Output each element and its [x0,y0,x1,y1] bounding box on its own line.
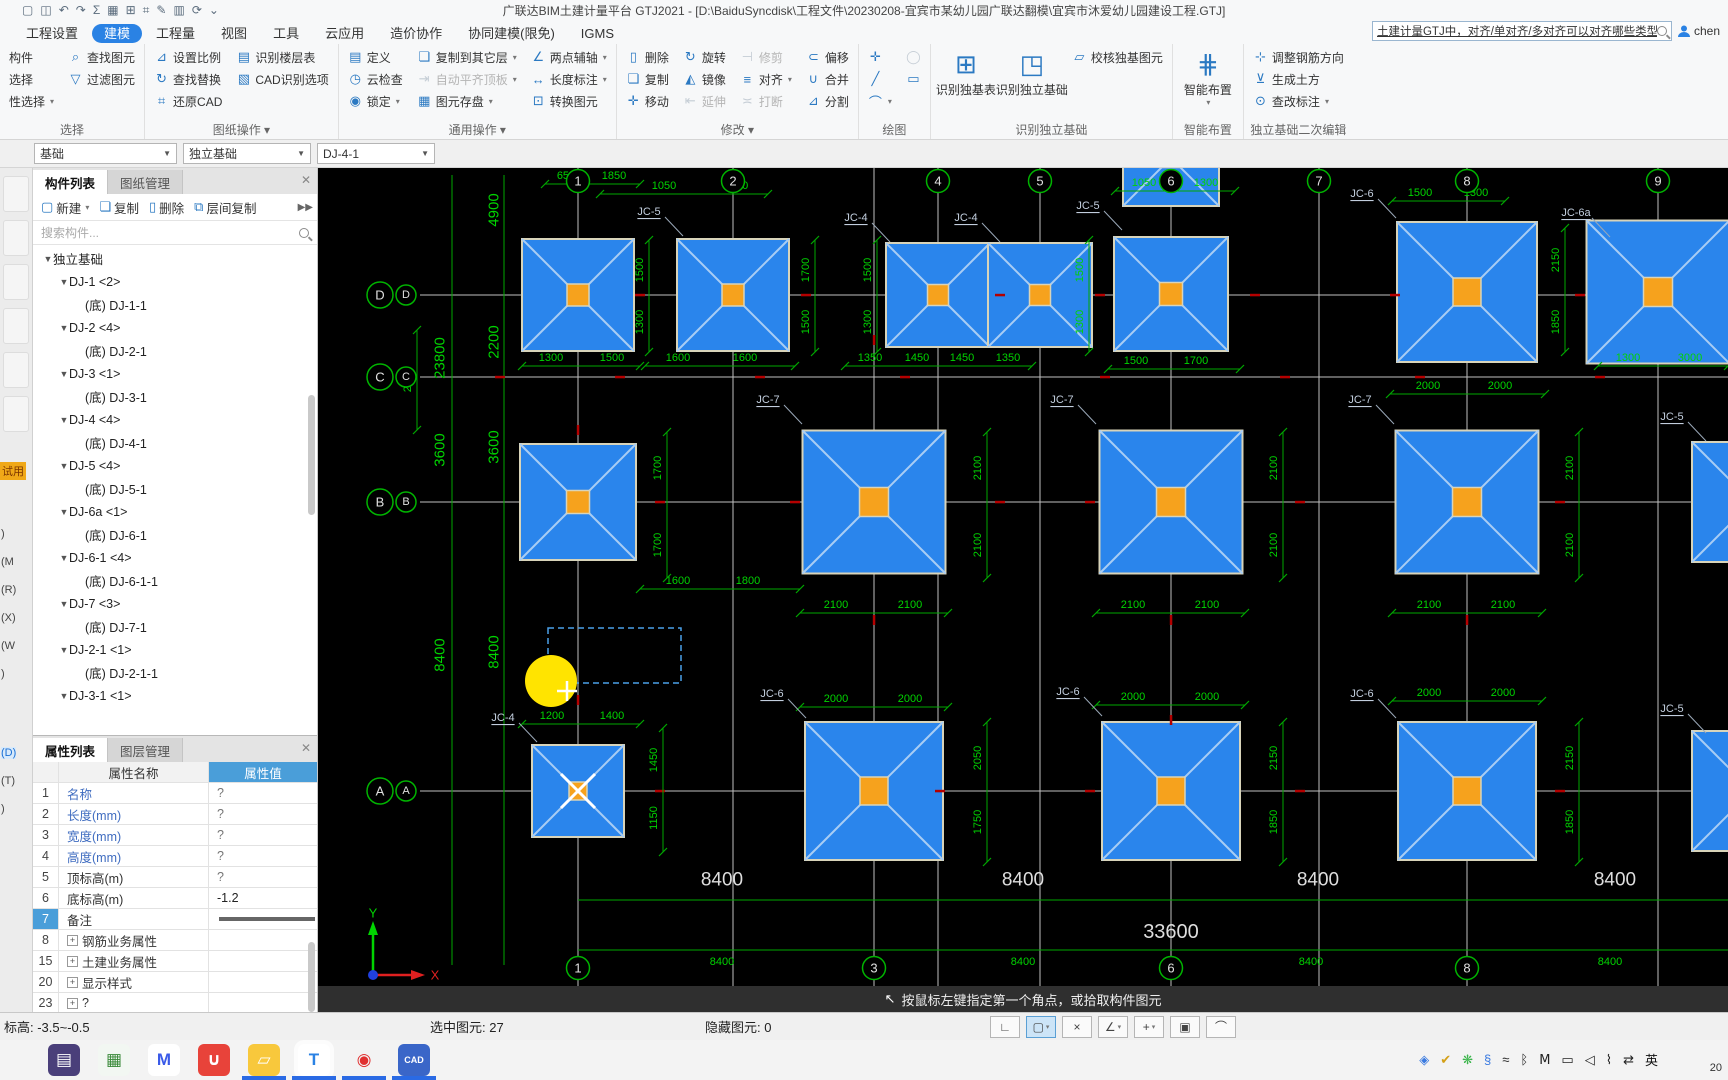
tree-item-DJ-7 <3>[interactable]: ▼DJ-7 <3> [33,592,317,615]
ribbon-button-识别独立基础[interactable]: ◳识别独立基础 [1001,46,1063,121]
cross-select-button[interactable]: × [1062,1016,1092,1038]
dim-text: 8400 [710,956,734,968]
mic-icon[interactable]: ⌇ [1606,1052,1612,1068]
tree-item-(底) DJ-7-1[interactable]: (底) DJ-7-1 [33,615,317,638]
property-row-顶标高(m)[interactable]: 5顶标高(m)? [33,867,317,888]
column-center[interactable] [1453,278,1481,306]
ribbon-button-识别独基表[interactable]: ⊞识别独基表 [935,46,997,121]
ribbon-item-移动[interactable]: ✛移动 [621,90,674,112]
axis-bubble-label: 9 [1654,174,1661,189]
menu-tab-视图[interactable]: 视图 [209,24,259,43]
dim-text: 2100 [972,533,984,557]
tree-item-DJ-3 <1>[interactable]: ▼DJ-3 <1> [33,362,317,385]
ribbon-item-定义[interactable]: ▤定义 [343,46,408,68]
dictionary-app-icon[interactable]: ▤ [48,1044,80,1076]
search-query-text: 土建计量GTJ中，对齐/单对齐/多对齐可以对齐哪些类型 [1377,23,1657,39]
ribbon-item-删除[interactable]: ▯删除 [621,46,674,68]
dim-text: 2100 [1195,599,1219,611]
props-scrollbar[interactable] [308,942,315,1012]
ribbon-item-识别楼层表[interactable]: ▤识别楼层表 [231,46,333,68]
icon-打断: ≍ [740,93,755,109]
ribbon-item-过滤图元[interactable]: ▽过滤图元 [63,68,140,90]
cursor-highlight[interactable] [525,655,577,707]
nav-item-fragment[interactable]: (D) [1,747,16,759]
ribbon-item-对齐[interactable]: ≡对齐▾ [735,68,797,90]
expand-plus-icon[interactable]: + [67,977,78,988]
ribbon-item-label: 两点辅轴 [550,49,598,66]
expand-arrow-icon: ▼ [59,507,69,517]
dim-text: 2150 [1550,248,1562,272]
collapsed-panel-stub[interactable] [3,352,29,388]
ribbon-item-延伸: ⇤延伸 [678,90,731,112]
undo-icon[interactable]: ↶ [59,1,69,19]
ribbon-item-构件[interactable]: 构件 [4,46,59,68]
collapsed-panel-stub[interactable] [3,396,29,432]
tree-scrollbar[interactable] [308,395,315,515]
column-center[interactable] [1453,488,1482,517]
tree-item-label: 独立基础 [53,249,103,268]
red-axis-tick [995,501,1005,504]
column-center[interactable] [1030,285,1051,306]
ribbon-item-point-tool-icon[interactable]: ✛ [863,46,897,68]
ribbon-item-旋转[interactable]: ↻旋转 [678,46,731,68]
tree-item-DJ-6a <1>[interactable]: ▼DJ-6a <1> [33,500,317,523]
ribbon-group-通用操作: ▤定义◷云检查◉锁定▾❏复制到其它层▾⇥自动平齐顶板▾▦图元存盘▾∠两点辅轴▾↔… [338,44,616,139]
property-row-长度(mm)[interactable]: 2长度(mm)? [33,804,317,825]
draw-icon[interactable]: ✎ [156,1,166,19]
collapsed-nav-strip[interactable]: 试用)(M(R)(X)(W)(D)(T)) [0,168,33,1012]
ribbon-item-生成土方[interactable]: ⊻生成土方 [1248,68,1349,90]
expand-arrow-icon: ▼ [59,277,69,287]
column-center[interactable] [567,284,589,306]
browser-icon[interactable]: § [1484,1052,1491,1067]
toolbar-button-层间复制[interactable]: ⧉层间复制 [190,196,260,219]
settings-toggles-icon[interactable]: ⇄ [1623,1052,1634,1068]
ribbon-item-选择[interactable]: 选择 [4,68,59,90]
tree-item-(底) DJ-2-1-1[interactable]: (底) DJ-2-1-1 [33,661,317,684]
save-icon[interactable]: ◫ [40,1,51,19]
dim-text: 2100 [1268,456,1280,480]
ribbon-item-查找图元[interactable]: ⌕查找图元 [63,46,140,68]
table-icon[interactable]: ⊞ [126,1,136,19]
angle-button[interactable]: ∠▾ [1098,1016,1128,1038]
property-name-label: ? [82,996,89,1010]
dim-text: 1700 [652,533,664,557]
dim-text: 1500 [1408,187,1432,199]
tree-item-(底) DJ-5-1[interactable]: (底) DJ-5-1 [33,477,317,500]
column-icon[interactable]: ▥ [173,1,184,19]
row-number: 23 [33,993,59,1012]
icon-复制: ❏ [626,71,641,87]
dim-text: 1700 [800,258,812,282]
tree-item-(底) DJ-6-1[interactable]: (底) DJ-6-1 [33,523,317,546]
property-row-显示样式[interactable]: 20+显示样式 [33,972,317,993]
ribbon-group-label: 通用操作 ▾ [343,121,612,139]
nav-item-fragment[interactable]: ) [1,528,5,540]
icon-对齐: ≡ [740,72,755,87]
ribbon-item-镜像[interactable]: ◭镜像 [678,68,731,90]
tree-item-label: DJ-6a <1> [69,505,127,519]
ribbon-item-label: 移动 [645,93,669,110]
volume-icon[interactable]: ◁ [1585,1052,1595,1068]
tab-图层管理[interactable]: 图层管理 [108,738,183,762]
file-explorer-icon[interactable]: ▱ [248,1044,280,1076]
column-center[interactable] [1453,777,1481,805]
ribbon-item-复制到其它层[interactable]: ❏复制到其它层▾ [412,46,522,68]
property-row-名称[interactable]: 1名称? [33,783,317,804]
ribbon-item-label: 查找替换 [173,71,221,88]
menu-tab-建模[interactable]: 建模 [92,24,142,43]
ribbon-item-性选择[interactable]: 性选择▾ [4,90,59,112]
tree-item-(底) DJ-3-1[interactable]: (底) DJ-3-1 [33,385,317,408]
tree-item-(底) DJ-6-1-1[interactable]: (底) DJ-6-1-1 [33,569,317,592]
ribbon-item-复制[interactable]: ❏复制 [621,68,674,90]
icon-识别楼层表: ▤ [236,49,251,65]
tab-图纸管理[interactable]: 图纸管理 [108,170,183,194]
nav-item-fragment[interactable]: ) [1,803,5,815]
region-button[interactable]: ▣ [1170,1016,1200,1038]
tree-item-(底) DJ-1-1[interactable]: (底) DJ-1-1 [33,293,317,316]
ribbon-item-查改标注[interactable]: ⊙查改标注▾ [1248,90,1349,112]
tree-item-(底) DJ-4-1[interactable]: (底) DJ-4-1 [33,431,317,454]
nav-item-fragment[interactable]: (W [1,640,15,652]
nav-item-fragment[interactable]: ) [1,668,5,680]
property-value [209,951,317,971]
ribbon-item-CAD识别选项[interactable]: ▧CAD识别选项 [231,68,333,90]
nav-item-fragment[interactable]: (X) [1,612,16,624]
property-row-宽度(mm)[interactable]: 3宽度(mm)? [33,825,317,846]
red-axis-tick [1170,615,1173,625]
chevron-down-icon: ▼ [297,149,305,158]
column-center[interactable] [1157,777,1185,805]
component-search-input[interactable]: 搜索构件... [33,221,317,245]
grid-icon[interactable]: ⌗ [143,1,150,19]
ribbon-item-云检查[interactable]: ◷云检查 [343,68,408,90]
chevron-down-icon: ▼ [421,149,429,158]
ribbon-item-两点辅轴[interactable]: ∠两点辅轴▾ [526,46,612,68]
antivirus-icon[interactable]: ✔ [1440,1052,1451,1068]
sum-icon[interactable]: Σ [93,1,100,19]
gtj-app-icon[interactable]: T [298,1044,330,1076]
red-axis-tick [577,695,580,705]
dropdown-arrow-icon: ▾ [85,203,89,212]
ribbon-item-line-tool-icon[interactable]: ╱ [863,68,897,90]
tree-item-label: (底) DJ-6-1-1 [85,571,158,590]
ribbon-item-分割[interactable]: ⊿分割 [801,90,854,112]
toolbar-button-复制[interactable]: ❏复制 [95,196,143,219]
ribbon-item-查找替换[interactable]: ↻查找替换 [149,68,227,90]
ribbon-item-circle-tool-icon: ◯ [901,46,926,68]
property-name: 顶标高(m) [59,867,209,887]
ribbon-icon-识别独基表: ⊞ [955,49,977,81]
property-name: +? [59,993,209,1012]
jc-label-JC-6: JC-6 [1056,686,1079,698]
icon-镜像: ◭ [683,71,698,87]
clock: 20 [1710,1062,1722,1074]
nav-item-fragment[interactable]: (M [1,556,14,568]
security-shield-icon[interactable]: ◈ [1419,1052,1429,1068]
expand-plus-icon[interactable]: + [67,935,78,946]
angle-button-icon: ∠ [1105,1020,1116,1034]
axis-bubble-label: C [375,370,384,385]
column-center[interactable] [1160,283,1183,306]
refresh-icon[interactable]: ⟳ [192,1,202,19]
ribbon-item-label: 锁定 [367,93,391,110]
删除-icon: ▯ [149,199,156,215]
wifi-icon[interactable]: ≈ [1502,1052,1509,1067]
column-center[interactable] [1157,488,1186,517]
column-center[interactable] [860,488,889,517]
dim-text: 1450 [950,352,974,364]
ribbon-item-label: 复制到其它层 [436,49,508,66]
menu-tab-云应用[interactable]: 云应用 [313,24,376,43]
ribbon-item-图元存盘[interactable]: ▦图元存盘▾ [412,90,522,112]
user-account[interactable]: chen [1677,24,1720,38]
property-row-?[interactable]: 23+? [33,993,317,1012]
dim-text: 2000 [1491,687,1515,699]
jc-label-JC-6: JC-6 [1350,688,1373,700]
quick-access-toolbar: ▢◫↶↷Σ▦⊞⌗✎▥⟳⌄ [0,1,219,19]
dim-text: 3600 [432,433,449,466]
dim-text: 2150 [1564,746,1576,770]
icon-两点辅轴: ∠ [531,49,546,65]
ribbon-item-label: 识别楼层表 [255,49,315,66]
new-file-icon[interactable]: ▢ [22,1,33,19]
property-value: ? [209,867,317,887]
ribbon-group-图纸操作: ⊿设置比例↻查找替换⌗还原CAD▤识别楼层表▧CAD识别选项图纸操作 ▾ [144,44,338,139]
close-icon[interactable]: ✕ [301,173,311,187]
ribbon-item-转换图元[interactable]: ⊡转换图元 [526,90,612,112]
property-value[interactable] [209,909,317,929]
property-panel-tabs: 属性列表图层管理✕ [33,736,317,762]
collapsed-panel-stub[interactable] [3,220,29,256]
ribbon-item-合并[interactable]: ∪合并 [801,68,854,90]
ribbon-item-label: 过滤图元 [87,71,135,88]
tree-item-独立基础[interactable]: ▼独立基础 [33,247,317,270]
expand-plus-icon[interactable]: + [67,956,78,967]
dim-text: 1450 [648,748,660,772]
dropdown-value: 基础 [40,145,64,162]
redo-icon[interactable]: ↷ [76,1,86,19]
dropdown-DJ-4-1[interactable]: DJ-4-1▼ [317,143,435,164]
property-name-label: 显示样式 [82,973,132,992]
icon-还原CAD: ⌗ [154,93,169,109]
ribbon-group-智能布置: ⋕智能布置▾智能布置 [1172,44,1243,139]
dim-text: 2200 [486,325,503,358]
tab-构件列表[interactable]: 构件列表 [33,170,108,194]
property-table: 属性名称属性值1名称?2长度(mm)?3宽度(mm)?4高度(mm)?5顶标高(… [33,762,317,1012]
dropdown-arrow-icon: ▾ [489,97,493,106]
offset-input-button[interactable]: +▾ [1134,1016,1164,1038]
menu-tab-IGMS[interactable]: IGMS [569,24,626,43]
ribbon-item-设置比例[interactable]: ⊿设置比例 [149,46,227,68]
dim-text: 2150 [1268,746,1280,770]
red-axis-tick [1100,376,1110,379]
application-window: ▢◫↶↷Σ▦⊞⌗✎▥⟳⌄ 广联达BIM土建计量平台 GTJ2021 - [D:\… [0,0,1728,1080]
property-panel: 属性列表图层管理✕ 属性名称属性值1名称?2长度(mm)?3宽度(mm)?4高度… [33,735,317,1012]
column-center[interactable] [1644,278,1673,307]
arc-tool-icon: ⌒ [868,92,883,111]
column-center[interactable] [722,284,744,306]
toolbar-button-删除[interactable]: ▯删除 [145,196,188,219]
arc-mode-button[interactable]: ⌒ [1206,1016,1236,1038]
ribbon-item-rect-tool-icon[interactable]: ▭ [901,68,926,90]
tree-item-DJ-2-1 <1>[interactable]: ▼DJ-2-1 <1> [33,638,317,661]
media-icon[interactable]: Ⅿ [1539,1052,1550,1068]
windows-taskbar: ▤▦M∪▱T◉CAD◈✔❋§≈ᛒⅯ▭◁⌇⇄英20 [0,1040,1728,1080]
ribbon-item-label: 修剪 [759,49,783,66]
ribbon-item-label: 生成土方 [1272,71,1320,88]
dim-text: 2100 [1564,533,1576,557]
search-icon[interactable] [1657,26,1667,36]
dim-text: 1350 [996,352,1020,364]
close-icon[interactable]: ✕ [301,741,311,755]
collapsed-panel-stub[interactable] [3,176,29,212]
huawei-app-icon[interactable]: ∪ [198,1044,230,1076]
running-indicator [242,1076,286,1080]
icon-定义: ▤ [348,49,363,65]
dim-text: 8400 [432,638,449,671]
dim-text: 1850 [602,170,626,182]
more-tools-icon[interactable]: ▶▶ [298,202,313,213]
running-indicator [392,1076,436,1080]
jc-label-JC-5: JC-5 [637,206,660,218]
ribbon-item-锁定[interactable]: ◉锁定▾ [343,90,408,112]
m-app-icon[interactable]: M [148,1044,180,1076]
dim-text: 4900 [486,193,503,226]
dropdown-value: 独立基础 [189,145,237,162]
ribbon-item-label: 选择 [9,71,33,88]
ribbon-item-label: 延伸 [702,93,726,110]
ribbon-item-调整钢筋方向[interactable]: ⊹调整钢筋方向 [1248,46,1349,68]
dim-text: 2050 [972,746,984,770]
dropdown-基础[interactable]: 基础▼ [34,143,177,164]
ribbon-item-label: 设置比例 [173,49,221,66]
cad-app-icon[interactable]: CAD [398,1044,430,1076]
ribbon-item-偏移[interactable]: ⊂偏移 [801,46,854,68]
expand-plus-icon[interactable]: + [67,998,78,1009]
tree-item-label: (底) DJ-2-1 [85,341,147,360]
cad-drawing[interactable]: 6501850105010501050130015001300130015001… [318,168,1728,986]
screen-record-icon[interactable]: ◉ [348,1044,380,1076]
ribbon-item-arc-tool-icon[interactable]: ⌒▾ [863,90,897,112]
column-center[interactable] [567,491,590,514]
icon-校核独基图元: ▱ [1072,49,1087,65]
menu-tab-造价协作[interactable]: 造价协作 [378,24,454,43]
help-search-input[interactable]: 土建计量GTJ中，对齐/单对齐/多对齐可以对齐哪些类型 [1372,21,1672,41]
axis-bubble-label: B [402,496,409,508]
menu-tab-工程量[interactable]: 工程量 [144,24,207,43]
menu-tab-工具[interactable]: 工具 [261,24,311,43]
elevation-readout: 标高: -3.5~-0.5 [4,1017,90,1036]
toolbar-button-新建[interactable]: ▢新建▾ [37,196,93,219]
selected-count: 选中图元: 27 [430,1017,504,1036]
icon-查改标注: ⊙ [1253,93,1268,109]
ribbon-item-label: 查改标注 [1272,93,1320,110]
property-row-高度(mm)[interactable]: 4高度(mm)? [33,846,317,867]
row-number: 1 [33,783,59,803]
icon-修剪: ⊣ [740,49,755,65]
rect-tool-icon: ▭ [906,71,921,87]
tree-item-label: DJ-1 <2> [69,275,120,289]
column-center[interactable] [860,777,888,805]
tree-item-DJ-2 <4>[interactable]: ▼DJ-2 <4> [33,316,317,339]
dim-text: 1200 [540,710,564,722]
cad-canvas[interactable]: 6501850105010501050130015001300130015001… [318,168,1728,1012]
menu-tab-协同建模(限免)[interactable]: 协同建模(限免) [456,24,567,43]
ime-icon[interactable]: 英 [1645,1050,1658,1069]
ucs-x-label: X [431,968,440,983]
rect-select-button[interactable]: ▢▾ [1026,1016,1056,1038]
tree-item-DJ-3-1 <1>[interactable]: ▼DJ-3-1 <1> [33,684,317,707]
more-icon[interactable]: ⌄ [209,1,219,19]
ribbon-item-长度标注[interactable]: ↔长度标注▾ [526,68,612,90]
ortho-button[interactable]: ∟ [990,1016,1020,1038]
ribbon-button-智能布置[interactable]: ⋕智能布置▾ [1177,46,1239,121]
ribbon-item-label: 云检查 [367,71,403,88]
nav-item-fragment[interactable]: (R) [1,584,16,596]
tree-item-label: (底) DJ-6-1 [85,525,147,544]
red-axis-tick [1466,615,1469,625]
ribbon-group-绘图: ✛╱⌒▾◯▭绘图 [858,44,930,139]
ribbon-item-校核独基图元[interactable]: ▱校核独基图元 [1067,46,1168,68]
jc-label-JC-5: JC-5 [1660,703,1683,715]
battery-icon[interactable]: ▭ [1561,1052,1573,1068]
icon-分割: ⊿ [806,93,821,109]
wechat-icon[interactable]: ❋ [1462,1052,1473,1068]
tree-item-(底) DJ-2-1[interactable]: (底) DJ-2-1 [33,339,317,362]
menu-tab-工程设置[interactable]: 工程设置 [14,24,90,43]
icon-调整钢筋方向: ⊹ [1253,49,1268,65]
ribbon-item-打断: ≍打断 [735,90,797,112]
property-row-备注[interactable]: 7备注 [33,909,317,930]
property-row-钢筋业务属性[interactable]: 8+钢筋业务属性 [33,930,317,951]
tree-item-DJ-1 <2>[interactable]: ▼DJ-1 <2> [33,270,317,293]
property-value: -1.2 [209,888,317,908]
tree-item-DJ-6-1 <4>[interactable]: ▼DJ-6-1 <4> [33,546,317,569]
dropdown-独立基础[interactable]: 独立基础▼ [183,143,311,164]
property-name-label: 钢筋业务属性 [82,931,157,950]
property-row-底标高(m)[interactable]: 6底标高(m)-1.2 [33,888,317,909]
user-name: chen [1694,24,1720,38]
tab-属性列表[interactable]: 属性列表 [33,738,108,762]
property-row-土建业务属性[interactable]: 15+土建业务属性 [33,951,317,972]
tree-item-DJ-4 <4>[interactable]: ▼DJ-4 <4> [33,408,317,431]
viewport-icon[interactable]: ▦ [107,1,118,19]
dim-text: 2100 [824,599,848,611]
ribbon-group-选择: 构件选择性选择▾⌕查找图元▽过滤图元选择 [0,44,144,139]
calculator-app-icon[interactable]: ▦ [98,1044,130,1076]
remark-input[interactable] [219,917,315,921]
ribbon-item-还原CAD[interactable]: ⌗还原CAD [149,90,227,112]
bluetooth-icon[interactable]: ᛒ [1520,1052,1528,1067]
red-axis-tick [790,501,800,504]
column-center[interactable] [928,285,949,306]
tree-item-label: DJ-7 <3> [69,597,120,611]
dim-text: 8400 [701,870,743,891]
property-name: +钢筋业务属性 [59,930,209,950]
row-number: 6 [33,888,59,908]
tree-item-DJ-5 <4>[interactable]: ▼DJ-5 <4> [33,454,317,477]
ribbon-item-label: 构件 [9,49,33,66]
ribbon-item-label: 查找图元 [87,49,135,66]
nav-item-fragment[interactable]: (T) [1,775,15,787]
collapsed-panel-stub[interactable] [3,308,29,344]
dim-text: 8400 [1002,870,1044,891]
ribbon-item-label: 复制 [645,71,669,88]
ucs-y-label: Y [369,906,378,921]
collapsed-panel-stub[interactable] [3,264,29,300]
